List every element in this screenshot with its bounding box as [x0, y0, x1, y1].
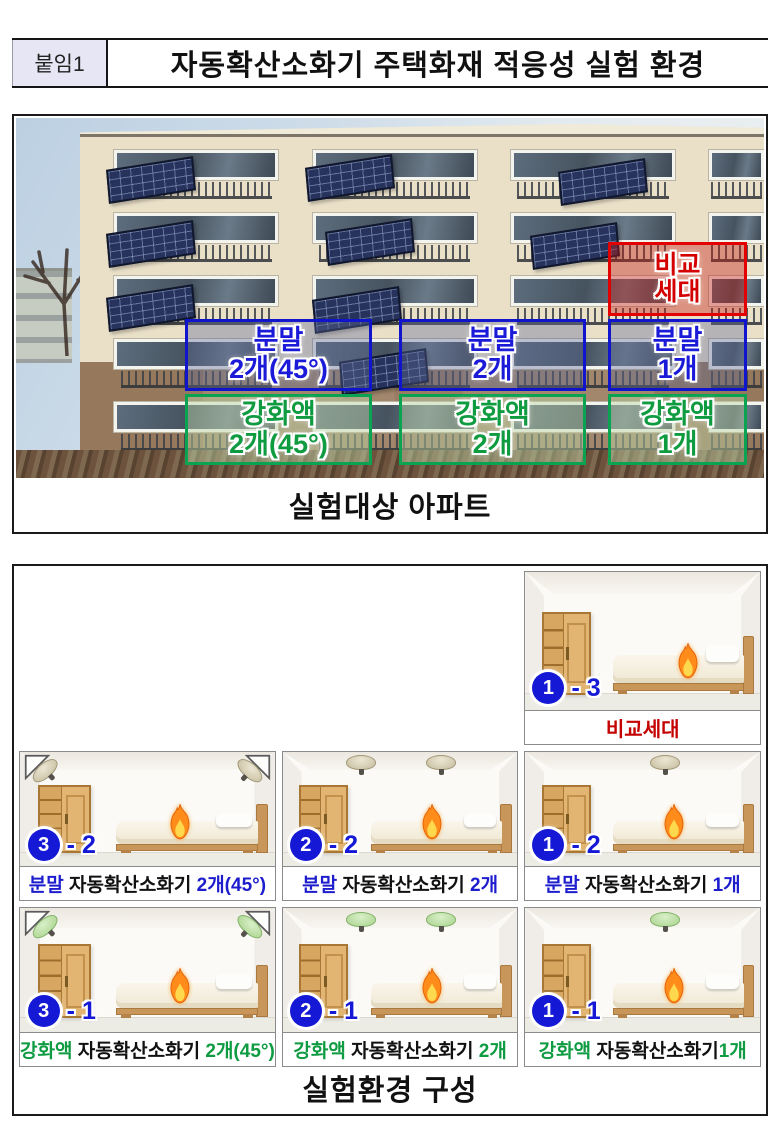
room-cell-1-1: 1 - 1 강화액 자동확산소화기1개	[524, 907, 761, 1067]
room-caption: 비교세대	[525, 710, 760, 744]
liquid-extinguisher-icon	[346, 912, 376, 927]
room-badge: 3 - 2	[28, 829, 96, 861]
fire-icon	[165, 803, 195, 841]
apartment-figure: 비교 세대 분말 2개(45°) 분말 2개 분말 1개 강화액 2개(45°)…	[12, 114, 768, 534]
overlay-powder-box-2: 분말 2개	[399, 319, 586, 391]
room-cell-2-2: 2 - 2 분말 자동확산소화기 2개	[282, 751, 519, 901]
window-bay	[709, 141, 764, 204]
room-illustration: 2 - 1	[283, 908, 518, 1032]
empty-area	[19, 571, 518, 745]
room-caption: 강화액 자동확산소화기 2개(45°)	[20, 1032, 275, 1066]
page-header: 붙임1 자동확산소화기 주택화재 적응성 실험 환경	[12, 38, 768, 88]
room-caption: 분말 자동확산소화기 2개(45°)	[20, 866, 275, 900]
room-caption: 분말 자동확산소화기 2개	[283, 866, 518, 900]
building-roof	[80, 124, 764, 137]
overlay-liquid-box-1: 강화액 2개(45°)	[185, 394, 372, 465]
overlay-liquid-box-2: 강화액 2개	[399, 394, 586, 465]
room-grid: 1 - 3 비교세대	[19, 571, 761, 1067]
room-cell-2-1: 2 - 1 강화액 자동확산소화기 2개	[282, 907, 519, 1067]
room-illustration: 2 - 2	[283, 752, 518, 866]
room-illustration: 3 - 1	[20, 908, 275, 1032]
attachment-page: { "header": { "tag": "붙임1", "title": "자동…	[0, 0, 780, 1125]
room-cell-3-2: 3 - 2 분말 자동확산소화기 2개(45°)	[19, 751, 276, 901]
overlay-compare-box: 비교 세대	[608, 242, 747, 316]
room-badge: 1 - 3	[532, 672, 600, 704]
page-title: 자동확산소화기 주택화재 적응성 실험 환경	[108, 40, 768, 86]
powder-extinguisher-icon	[426, 755, 456, 770]
attachment-tag: 붙임1	[12, 40, 108, 86]
corner-mount-left	[24, 910, 58, 944]
fire-icon	[659, 803, 689, 841]
liquid-extinguisher-icon	[426, 912, 456, 927]
room-badge: 2 - 1	[290, 995, 358, 1027]
room-badge: 2 - 2	[290, 829, 358, 861]
room-caption: 강화액 자동확산소화기 2개	[283, 1032, 518, 1066]
powder-extinguisher-icon	[650, 755, 680, 770]
room-illustration: 1 - 1	[525, 908, 760, 1032]
liquid-extinguisher-icon	[650, 912, 680, 927]
overlay-powder-box-3: 분말 1개	[608, 319, 747, 391]
overlay-powder-box-1: 분말 2개(45°)	[185, 319, 372, 391]
experiment-figure: 1 - 3 비교세대	[12, 564, 768, 1116]
room-illustration: 1 - 3	[525, 572, 760, 710]
room-cell-1-2: 1 - 2 분말 자동확산소화기 1개	[524, 751, 761, 901]
fire-icon	[417, 967, 447, 1005]
fire-icon	[659, 967, 689, 1005]
room-cell-3-1: 3 - 1 강화액 자동확산소화기 2개(45°)	[19, 907, 276, 1067]
room-caption: 강화액 자동확산소화기1개	[525, 1032, 760, 1066]
room-illustration: 1 - 2	[525, 752, 760, 866]
room-badge: 3 - 1	[28, 995, 96, 1027]
apartment-photo: 비교 세대 분말 2개(45°) 분말 2개 분말 1개 강화액 2개(45°)…	[16, 118, 764, 478]
room-illustration: 3 - 2	[20, 752, 275, 866]
room-cell-1-3: 1 - 3 비교세대	[524, 571, 761, 745]
apartment-figure-caption: 실험대상 아파트	[16, 478, 764, 532]
experiment-figure-caption: 실험환경 구성	[19, 1067, 761, 1109]
fire-icon	[673, 642, 703, 680]
fire-icon	[417, 803, 447, 841]
corner-mount-right	[237, 910, 271, 944]
room-caption: 분말 자동확산소화기 1개	[525, 866, 760, 900]
room-badge: 1 - 2	[532, 829, 600, 861]
room-badge: 1 - 1	[532, 995, 600, 1027]
corner-mount-left	[24, 754, 58, 788]
overlay-liquid-box-3: 강화액 1개	[608, 394, 747, 465]
corner-mount-right	[237, 754, 271, 788]
fire-icon	[165, 967, 195, 1005]
